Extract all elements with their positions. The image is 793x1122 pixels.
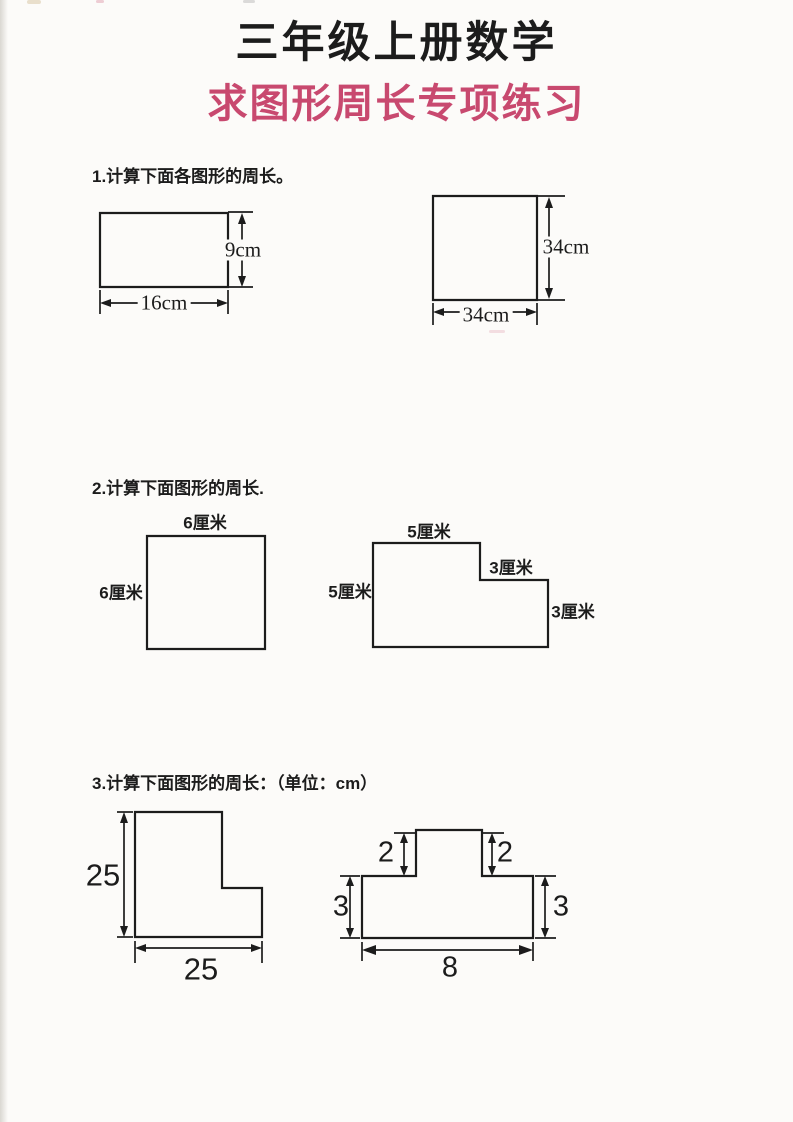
side-right-label: 3	[553, 893, 569, 922]
notch-right-label: 2	[497, 839, 513, 868]
bottom-label: 8	[442, 954, 458, 983]
figure-l-shape: 25 25	[85, 795, 300, 1000]
paper-edge-shadow	[0, 0, 8, 1122]
step-label: 3厘米	[489, 560, 532, 577]
height-label: 34cm	[540, 237, 593, 258]
figure-step-shape: 5厘米 5厘米 3厘米 3厘米	[315, 500, 605, 660]
width-label: 34cm	[460, 305, 513, 326]
left-label: 6厘米	[99, 585, 142, 602]
side-left-label: 3	[333, 893, 349, 922]
top-label: 5厘米	[407, 524, 450, 541]
page-subtitle: 求图形周长专项练习	[0, 82, 793, 126]
section-3-heading: 3.计算下面图形的周长：（单位：cm）	[92, 769, 377, 794]
rectangle-outline	[100, 213, 228, 287]
notch-left-label: 2	[378, 839, 394, 868]
bottom-label: 25	[184, 954, 218, 985]
width-label: 16cm	[138, 293, 191, 314]
figure-square-6: 6厘米 6厘米	[95, 500, 285, 660]
left-label: 5厘米	[328, 584, 371, 601]
square-outline	[433, 196, 537, 300]
figure-square-34: 34cm 34cm	[420, 185, 640, 345]
right-label: 3厘米	[551, 604, 594, 621]
top-label: 6厘米	[183, 515, 226, 532]
page-title: 三年级上册数学	[0, 20, 793, 67]
figure-rectangle-16x9: 9cm 16cm	[95, 195, 310, 330]
left-label: 25	[86, 860, 120, 891]
scan-artifact	[96, 0, 104, 3]
figure-t-shape: 2 2 3 3 8	[330, 795, 605, 1000]
height-label: 9cm	[222, 240, 264, 261]
worksheet-page: 三年级上册数学 求图形周长专项练习 1.计算下面各图形的周长。 9cm 16cm	[0, 0, 793, 1122]
notch-left-dimension-arrow	[394, 833, 416, 876]
square-outline	[147, 536, 265, 649]
section-2-heading: 2.计算下面图形的周长.	[92, 474, 264, 499]
scan-artifact	[243, 0, 255, 3]
section-1-heading: 1.计算下面各图形的周长。	[92, 162, 293, 187]
scan-artifact	[27, 0, 41, 4]
l-shape-outline	[135, 812, 262, 937]
